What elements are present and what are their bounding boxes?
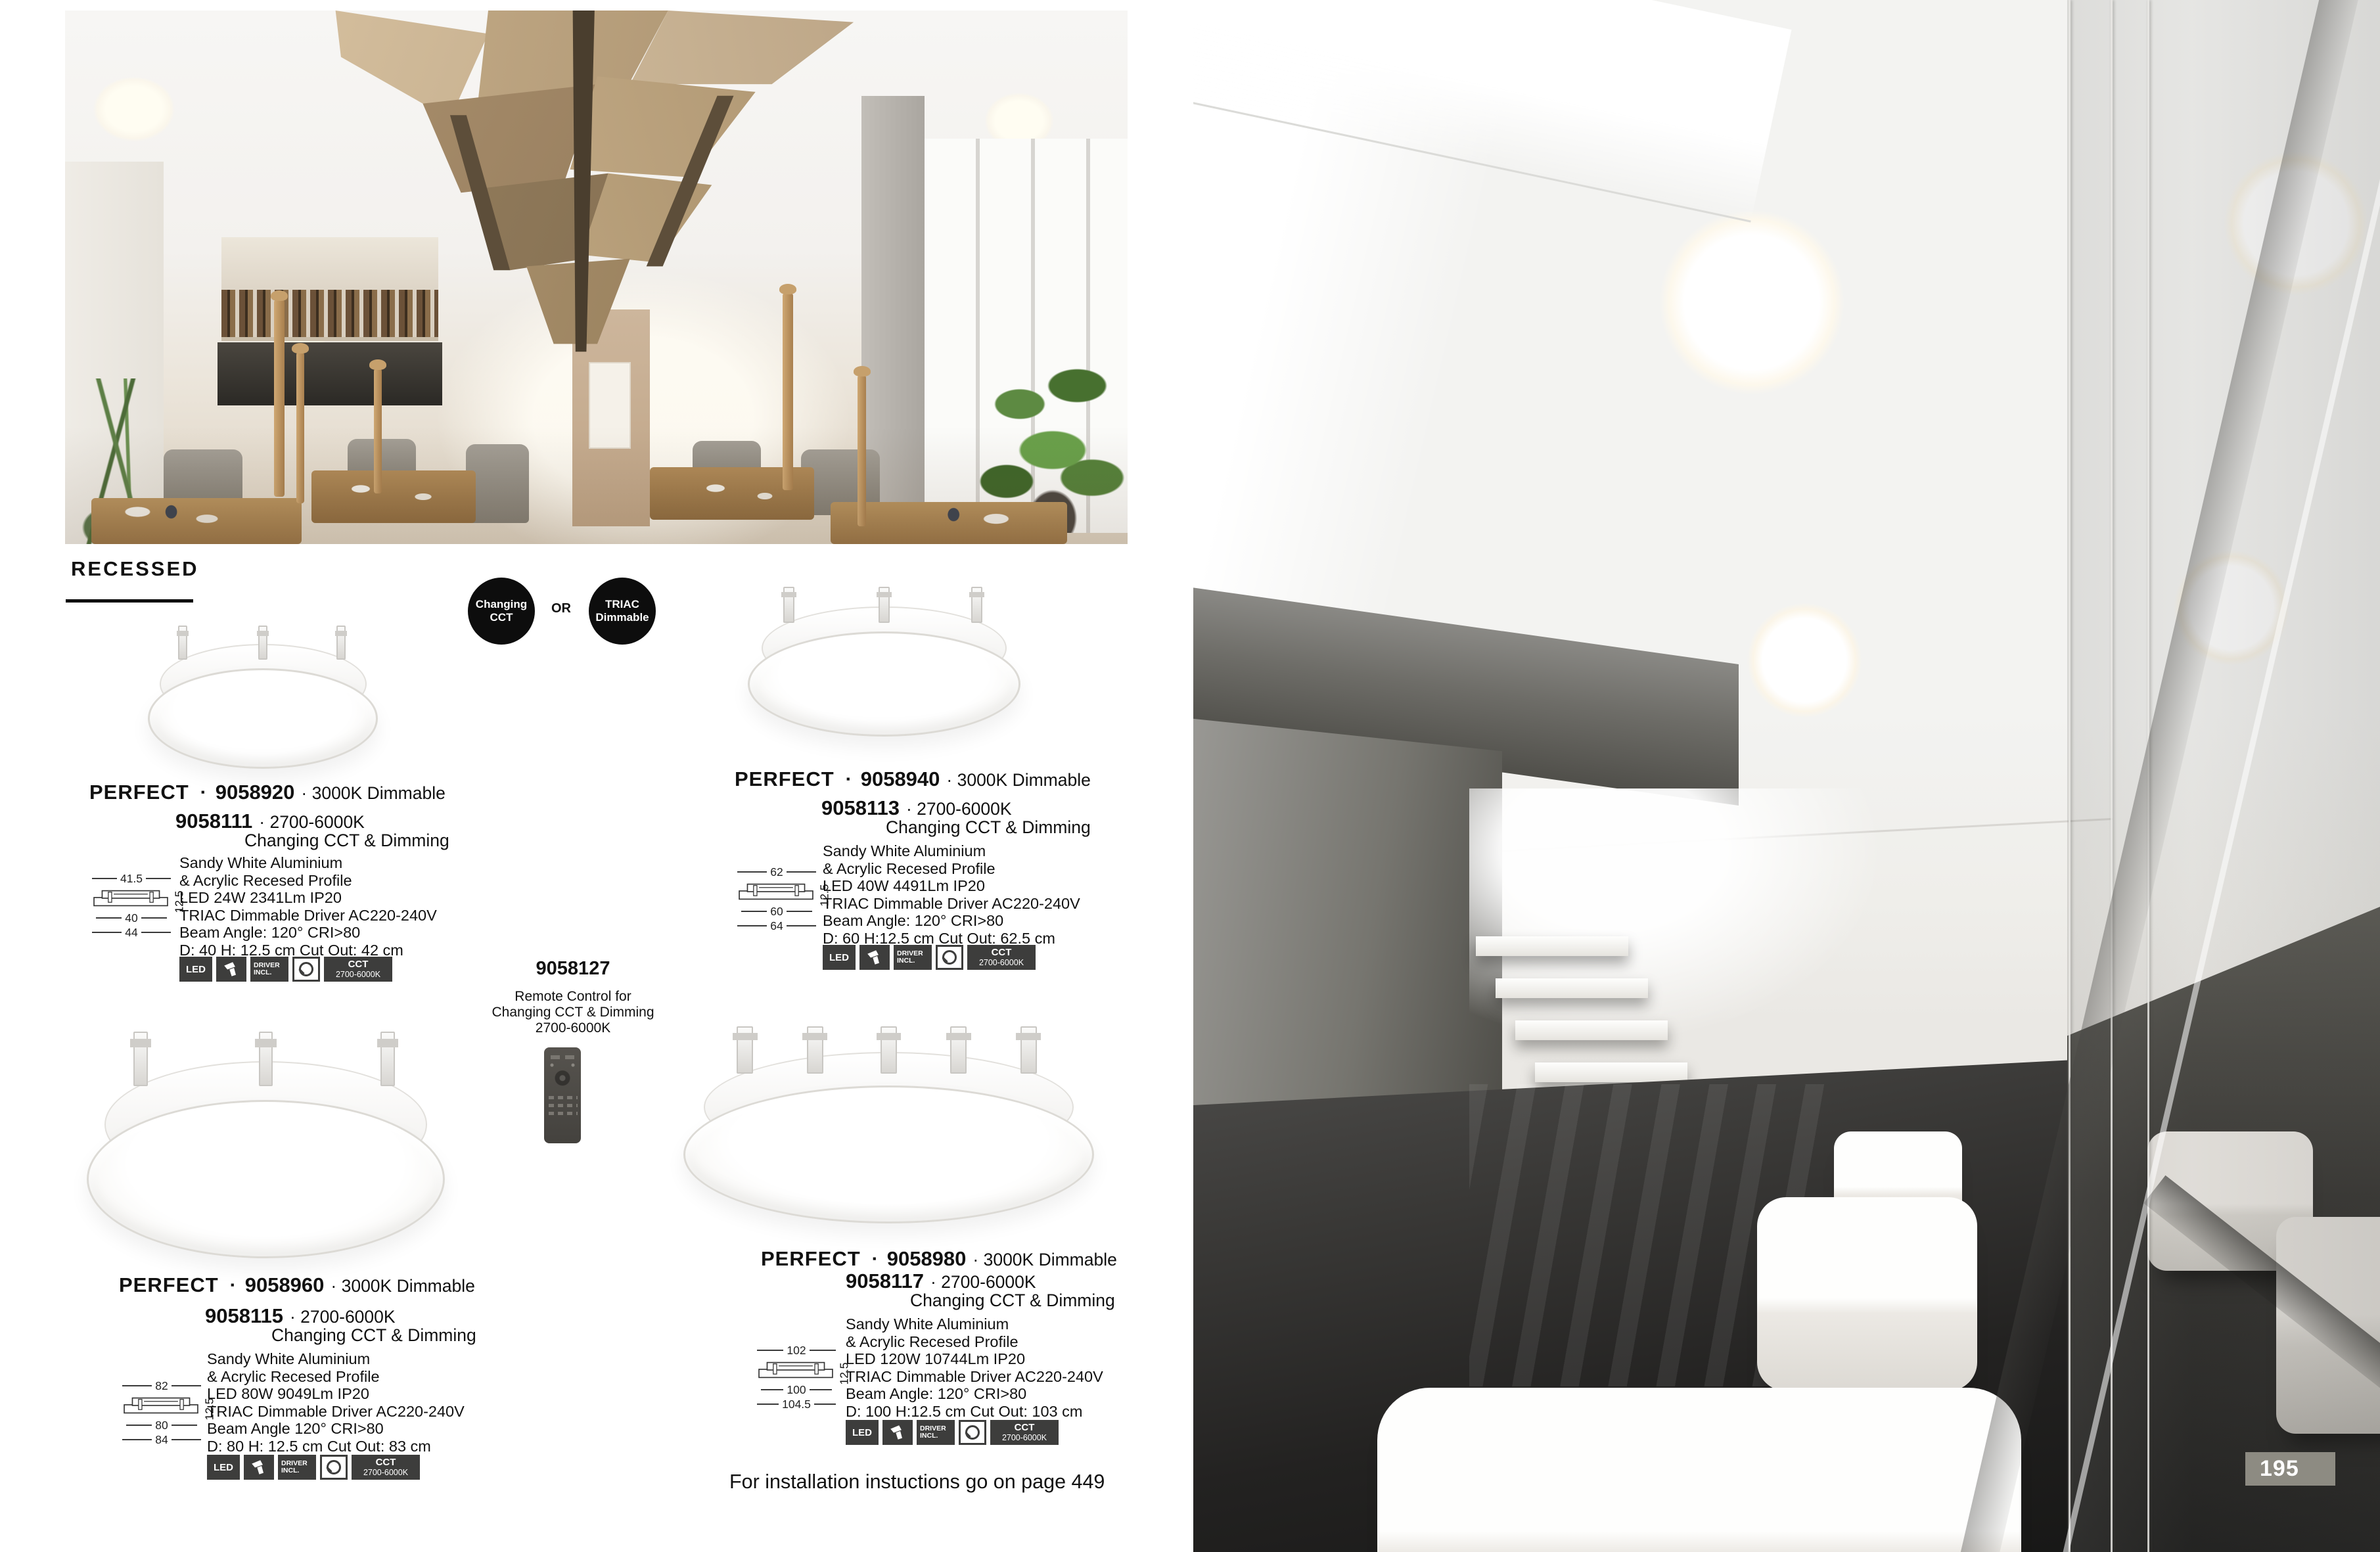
dimmable-knob-icon <box>959 1420 986 1445</box>
dim-height: 12.5 <box>202 1398 216 1420</box>
cct-range: 2700-6000K <box>336 970 380 979</box>
lamp-diffuser <box>87 1100 445 1259</box>
badge-text: TRIAC <box>605 598 639 611</box>
product-family: PERFECT <box>89 781 189 804</box>
led-icon: LED <box>207 1455 240 1480</box>
cct-label: CCT <box>1015 1423 1035 1433</box>
product-specs: Sandy White Aluminium & Acrylic Recesed … <box>207 1350 465 1455</box>
spec-line: Beam Angle: 120° CRI>80 <box>846 1385 1103 1403</box>
changing-cct-badge: Changing CCT <box>468 578 535 645</box>
spec-line: TRIAC Dimmable Driver AC220-240V <box>846 1368 1103 1386</box>
spec-line: LED 120W 10744Lm IP20 <box>846 1350 1103 1368</box>
led-icon: LED <box>823 945 856 970</box>
product-sku-desc: · 3000K Dimmable <box>301 783 445 804</box>
spec-line: & Acrylic Recesed Profile <box>207 1368 465 1386</box>
profile-drawing <box>739 880 813 903</box>
cct-range-icon: CCT 2700-6000K <box>352 1455 420 1480</box>
driver-included-icon: DRIVER INCL. <box>917 1420 955 1445</box>
spec-line: D: 80 H: 12.5 cm Cut Out: 83 cm <box>207 1438 465 1455</box>
mounting-clip <box>1020 1026 1037 1074</box>
product-family: PERFECT <box>761 1247 861 1271</box>
product-header-2: 9058115 · 2700-6000K <box>205 1304 396 1328</box>
feature-icons: LED DRIVER INCL. CCT 2700-6000K <box>179 957 392 982</box>
stair-step <box>1496 978 1648 998</box>
profile-drawing <box>93 886 168 910</box>
product-sku: 9058111 <box>175 810 252 833</box>
cct-range-icon: CCT 2700-6000K <box>967 945 1036 970</box>
bullet-separator: ▪ <box>201 786 205 799</box>
product-photo-9058940 <box>748 587 1020 737</box>
mounting-clip <box>259 1032 273 1086</box>
dimension-diagram-9058920: 41.5 40 44 12.5 <box>92 871 171 940</box>
spec-line: Sandy White Aluminium <box>846 1315 1103 1333</box>
product-sku: 9058960 <box>245 1273 325 1297</box>
product-specs: Sandy White Aluminium & Acrylic Recesed … <box>179 854 437 959</box>
driver-included-icon: DRIVER INCL. <box>278 1455 316 1480</box>
dimmable-knob-icon <box>292 957 320 982</box>
spec-line: Sandy White Aluminium <box>207 1350 465 1368</box>
product-header: PERFECT ▪ 9058960 · 3000K Dimmable <box>119 1273 475 1297</box>
feature-icons: LED DRIVER INCL. CCT 2700-6000K <box>207 1455 420 1480</box>
product-sku-desc: · 2700-6000K <box>259 812 365 833</box>
mounting-clip <box>879 587 890 623</box>
spec-line: Sandy White Aluminium <box>179 854 437 872</box>
restaurant-photo <box>65 11 1128 544</box>
remote-sku: 9058127 <box>485 958 661 980</box>
product-sku: 9058117 <box>846 1269 924 1293</box>
bullet-separator: ▪ <box>231 1279 235 1292</box>
product-sku-desc: · 2700-6000K <box>906 799 1012 819</box>
dim-bottom: 64 <box>737 919 816 933</box>
product-sku-desc-2: Changing CCT & Dimming <box>886 817 1091 838</box>
stair-step <box>1515 1020 1668 1040</box>
product-photo-9058920 <box>148 626 378 769</box>
dim-top: 82 <box>122 1379 201 1393</box>
dim-value: 84 <box>152 1433 171 1447</box>
feature-icons: LED DRIVER INCL. CCT 2700-6000K <box>823 945 1036 970</box>
spec-line: TRIAC Dimmable Driver AC220-240V <box>179 907 437 924</box>
dim-value: 80 <box>152 1419 171 1432</box>
product-sku-desc-2: Changing CCT & Dimming <box>244 831 449 851</box>
knob-glyph <box>327 1460 341 1474</box>
dim-bottom: 84 <box>122 1432 201 1447</box>
remote-control-block: 9058127 Remote Control for Changing CCT … <box>485 958 661 1036</box>
dim-height: 12.5 <box>837 1362 851 1384</box>
spec-line: LED 40W 4491Lm IP20 <box>823 877 1080 895</box>
mirror-seam <box>2111 0 2113 1552</box>
product-photo-9058980 <box>683 1026 1094 1223</box>
product-family: PERFECT <box>119 1273 219 1297</box>
triac-dimmable-badge: TRIAC Dimmable <box>589 578 656 645</box>
bullet-separator: ▪ <box>873 1252 877 1266</box>
product-sku: 9058920 <box>216 781 295 804</box>
cct-range-icon: CCT 2700-6000K <box>990 1420 1059 1445</box>
profile-drawing <box>124 1394 198 1417</box>
stair-step <box>1476 936 1628 956</box>
section-title: RECESSED <box>71 557 199 581</box>
driver-label: INCL. <box>281 1467 299 1475</box>
product-sku-desc: · 3000K Dimmable <box>973 1250 1116 1270</box>
spec-line: & Acrylic Recesed Profile <box>823 860 1080 878</box>
product-sku: 9058940 <box>861 767 940 791</box>
product-header: PERFECT ▪ 9058980 · 3000K Dimmable <box>761 1247 1117 1271</box>
spec-line: TRIAC Dimmable Driver AC220-240V <box>823 895 1080 913</box>
mounting-clip <box>336 626 346 660</box>
dimension-diagram-9058980: 102 100 104.5 12.5 <box>757 1343 836 1411</box>
driver-label: INCL. <box>920 1432 938 1440</box>
dim-mid: 100 <box>761 1382 832 1397</box>
led-icon: LED <box>179 957 212 982</box>
dim-mid: 80 <box>126 1418 197 1432</box>
dimmable-knob-icon <box>320 1455 348 1480</box>
product-header-2: 9058117 · 2700-6000K <box>846 1269 1036 1293</box>
dim-bottom: 44 <box>92 925 171 940</box>
product-header-2: 9058111 · 2700-6000K <box>175 810 365 833</box>
badge-text: Dimmable <box>595 611 649 624</box>
dim-top: 102 <box>757 1343 836 1358</box>
cct-label: CCT <box>348 959 369 970</box>
product-family: PERFECT <box>735 767 835 791</box>
cct-range: 2700-6000K <box>363 1468 408 1477</box>
remote-desc: Remote Control for <box>485 989 661 1005</box>
dim-value: 104.5 <box>779 1398 814 1411</box>
product-sku-desc: · 3000K Dimmable <box>331 1276 474 1296</box>
driver-label: INCL. <box>897 957 915 965</box>
product-sku: 9058113 <box>821 796 900 820</box>
dim-mid: 60 <box>741 904 812 919</box>
page-number: 195 <box>2260 1456 2299 1482</box>
knob-glyph <box>965 1425 980 1440</box>
led-icon: LED <box>846 1420 879 1445</box>
dim-top: 41.5 <box>92 871 171 886</box>
product-photo-9058960 <box>87 1032 445 1258</box>
feature-icons: LED DRIVER INCL. CCT 2700-6000K <box>846 1420 1059 1445</box>
dim-mid: 40 <box>96 911 167 925</box>
dim-top: 62 <box>737 865 816 879</box>
mounting-clip <box>133 1032 148 1086</box>
footer-note: For installation instuctions go on page … <box>729 1471 1105 1494</box>
dim-value: 62 <box>767 865 786 879</box>
spec-line: & Acrylic Recesed Profile <box>846 1333 1103 1351</box>
white-cube-stool <box>1757 1197 1977 1391</box>
lamp-diffuser <box>683 1085 1094 1223</box>
product-header: PERFECT ▪ 9058940 · 3000K Dimmable <box>735 767 1091 791</box>
profile-drawing <box>758 1358 833 1382</box>
spec-line: Beam Angle 120° CRI>80 <box>207 1420 465 1438</box>
product-sku-desc-2: Changing CCT & Dimming <box>271 1325 476 1346</box>
dim-value: 64 <box>767 919 786 933</box>
product-header-2: 9058113 · 2700-6000K <box>821 796 1012 820</box>
remote-desc: 2700-6000K <box>485 1020 661 1036</box>
dimension-diagram-9058960: 82 80 84 12.5 <box>122 1379 201 1447</box>
dim-value: 82 <box>152 1379 171 1393</box>
lamp-diffuser <box>148 668 378 769</box>
remote-control-photo <box>544 1047 581 1143</box>
bullet-separator: ▪ <box>846 773 850 786</box>
spotlight-icon <box>244 1455 274 1480</box>
spec-line: Sandy White Aluminium <box>823 842 1080 860</box>
mirror-seam <box>2069 0 2071 1552</box>
white-cube-table <box>1377 1388 2021 1552</box>
dimmable-knob-icon <box>936 945 963 970</box>
spotlight-icon <box>859 945 890 970</box>
dim-bottom: 104.5 <box>757 1397 836 1411</box>
spec-line: Beam Angle: 120° CRI>80 <box>179 924 437 942</box>
ceiling-cove <box>1193 0 1791 223</box>
remote-desc: Changing CCT & Dimming <box>485 1005 661 1020</box>
page-number-badge: 195 <box>2245 1452 2335 1486</box>
badge-text: CCT <box>490 611 513 624</box>
dim-value: 41.5 <box>117 872 146 886</box>
product-sku-desc-2: Changing CCT & Dimming <box>910 1290 1115 1311</box>
spec-line: & Acrylic Recesed Profile <box>179 872 437 890</box>
product-header: PERFECT ▪ 9058920 · 3000K Dimmable <box>89 781 446 804</box>
light-glow <box>1469 788 1877 1038</box>
dim-value: 100 <box>783 1383 809 1397</box>
cct-range: 2700-6000K <box>1002 1433 1047 1442</box>
product-sku-desc: · 2700-6000K <box>930 1272 1036 1292</box>
spec-line: LED 80W 9049Lm IP20 <box>207 1385 465 1403</box>
product-sku-desc: · 3000K Dimmable <box>946 770 1090 790</box>
cct-range: 2700-6000K <box>979 958 1024 967</box>
spec-line: Beam Angle: 120° CRI>80 <box>823 912 1080 930</box>
cct-range-icon: CCT 2700-6000K <box>324 957 392 982</box>
mounting-clip <box>178 626 187 660</box>
spotlight-icon <box>216 957 246 982</box>
spotlight-icon <box>882 1420 913 1445</box>
photo-vignette <box>65 11 1128 544</box>
driver-label: INCL. <box>254 969 271 977</box>
dim-value: 40 <box>122 911 141 925</box>
spec-line: TRIAC Dimmable Driver AC220-240V <box>207 1403 465 1421</box>
mounting-clip <box>807 1026 823 1074</box>
driver-included-icon: DRIVER INCL. <box>250 957 288 982</box>
mounting-clip <box>950 1026 967 1074</box>
mounting-clip <box>737 1026 753 1074</box>
product-specs: Sandy White Aluminium & Acrylic Recesed … <box>823 842 1080 947</box>
dimension-diagram-9058940: 62 60 64 12.5 <box>737 865 816 933</box>
mounting-clip <box>380 1032 395 1086</box>
knob-glyph <box>299 962 313 976</box>
mounting-clip <box>258 626 267 660</box>
stair-step <box>1535 1062 1687 1082</box>
cct-label: CCT <box>376 1457 396 1468</box>
lamp-diffuser <box>748 631 1020 737</box>
spec-line: D: 100 H:12.5 cm Cut Out: 103 cm <box>846 1403 1103 1421</box>
dim-value: 44 <box>122 926 141 940</box>
spec-line: LED 24W 2341Lm IP20 <box>179 889 437 907</box>
badge-text: Changing <box>476 598 527 611</box>
cct-label: CCT <box>992 947 1012 958</box>
mounting-clip <box>971 587 982 623</box>
interior-photo <box>1193 0 2380 1552</box>
dim-height: 12.5 <box>172 890 186 913</box>
mounting-clip <box>783 587 794 623</box>
knob-glyph <box>942 950 957 965</box>
section-underline <box>66 599 193 603</box>
driver-included-icon: DRIVER INCL. <box>894 945 932 970</box>
mounting-clip <box>881 1026 897 1074</box>
product-sku: 9058115 <box>205 1304 283 1328</box>
product-sku-desc: · 2700-6000K <box>290 1307 396 1327</box>
or-label: OR <box>547 601 576 616</box>
dim-value: 60 <box>767 905 786 919</box>
dim-value: 102 <box>783 1344 809 1358</box>
product-sku: 9058980 <box>887 1247 967 1271</box>
product-specs: Sandy White Aluminium & Acrylic Recesed … <box>846 1315 1103 1420</box>
dim-height: 12.5 <box>817 884 831 906</box>
catalog-page: RECESSED Changing CCT OR TRIAC Dimmable <box>0 0 2380 1552</box>
